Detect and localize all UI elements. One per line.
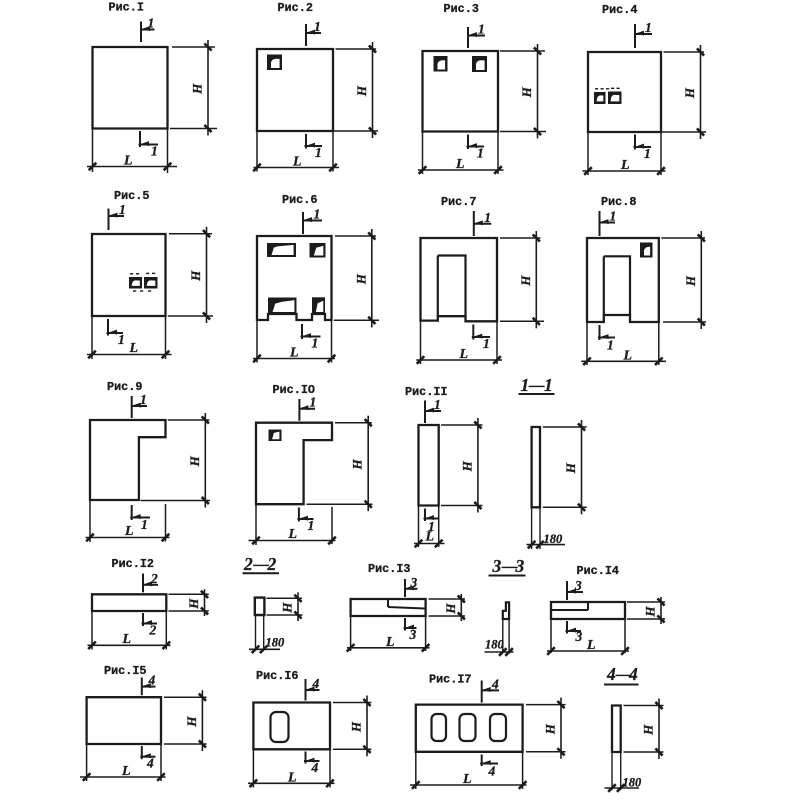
svg-text:H: H xyxy=(443,603,458,615)
svg-text:H: H xyxy=(353,273,368,285)
svg-text:1: 1 xyxy=(141,517,148,532)
svg-text:Рис.I7: Рис.I7 xyxy=(429,673,471,687)
svg-text:Рис.6: Рис.6 xyxy=(282,193,317,207)
svg-text:4: 4 xyxy=(146,756,154,771)
svg-text:H: H xyxy=(186,598,201,610)
svg-text:L: L xyxy=(462,772,472,787)
svg-text:L: L xyxy=(385,635,395,650)
svg-text:1: 1 xyxy=(315,145,322,160)
svg-text:L: L xyxy=(455,157,465,172)
svg-text:Рис.I4: Рис.I4 xyxy=(577,564,619,578)
svg-text:3: 3 xyxy=(515,556,525,576)
svg-text:1: 1 xyxy=(119,202,126,217)
svg-text:1: 1 xyxy=(645,20,652,35)
svg-text:3: 3 xyxy=(410,575,418,590)
svg-text:L: L xyxy=(459,347,469,362)
svg-text:L: L xyxy=(289,346,299,361)
svg-text:4: 4 xyxy=(488,764,496,779)
svg-text:4: 4 xyxy=(606,664,616,684)
svg-text:1: 1 xyxy=(314,207,321,222)
svg-text:Рис.II: Рис.II xyxy=(405,385,447,399)
svg-text:1: 1 xyxy=(484,210,491,225)
svg-text:2: 2 xyxy=(149,623,157,638)
svg-text:1: 1 xyxy=(477,146,484,161)
svg-text:H: H xyxy=(280,602,295,614)
svg-text:2: 2 xyxy=(243,554,253,574)
svg-text:L: L xyxy=(121,764,131,779)
svg-text:H: H xyxy=(682,87,697,99)
svg-text:Рис.I5: Рис.I5 xyxy=(104,664,146,678)
svg-text:L: L xyxy=(292,155,302,170)
svg-text:L: L xyxy=(620,158,630,173)
svg-text:L: L xyxy=(122,632,132,647)
svg-text:Рис.9: Рис.9 xyxy=(107,380,142,394)
svg-text:1: 1 xyxy=(483,336,490,351)
svg-text:H: H xyxy=(187,455,202,467)
svg-text:L: L xyxy=(123,154,133,169)
svg-text:1: 1 xyxy=(521,375,530,395)
svg-text:Рис.7: Рис.7 xyxy=(441,195,476,209)
svg-text:3: 3 xyxy=(492,556,502,576)
svg-text:180: 180 xyxy=(544,532,564,546)
svg-text:4: 4 xyxy=(148,673,156,688)
svg-text:1: 1 xyxy=(314,19,321,34)
svg-text:H: H xyxy=(543,723,558,735)
svg-text:4: 4 xyxy=(312,676,320,691)
svg-text:H: H xyxy=(683,275,698,287)
svg-text:H: H xyxy=(563,462,578,474)
svg-text:H: H xyxy=(354,85,369,97)
svg-text:3: 3 xyxy=(409,627,417,642)
svg-text:Рис.8: Рис.8 xyxy=(601,195,636,209)
svg-text:180: 180 xyxy=(623,776,643,790)
svg-text:L: L xyxy=(586,638,596,653)
svg-text:L: L xyxy=(287,771,297,786)
svg-text:3: 3 xyxy=(574,578,582,593)
svg-text:1: 1 xyxy=(140,392,147,407)
svg-text:1: 1 xyxy=(310,395,317,410)
svg-text:L: L xyxy=(425,530,435,545)
svg-text:4: 4 xyxy=(311,760,319,775)
svg-text:1: 1 xyxy=(478,22,485,37)
svg-text:1: 1 xyxy=(434,397,441,412)
svg-text:1: 1 xyxy=(118,332,125,347)
svg-text:1: 1 xyxy=(308,518,315,533)
svg-text:1: 1 xyxy=(312,336,319,351)
svg-text:Рис.4: Рис.4 xyxy=(602,3,637,17)
svg-text:1: 1 xyxy=(148,16,155,31)
svg-text:—: — xyxy=(528,377,545,394)
svg-text:H: H xyxy=(349,721,364,733)
svg-text:Рис.I: Рис.I xyxy=(109,1,144,15)
svg-text:L: L xyxy=(124,524,134,539)
svg-text:H: H xyxy=(350,459,365,471)
svg-text:1: 1 xyxy=(151,144,158,159)
svg-text:H: H xyxy=(643,606,658,618)
svg-text:Рис.I6: Рис.I6 xyxy=(256,669,298,683)
svg-text:1: 1 xyxy=(644,146,651,161)
svg-text:2: 2 xyxy=(150,571,158,586)
svg-text:1: 1 xyxy=(610,209,617,224)
svg-text:H: H xyxy=(188,270,203,282)
svg-text:Рис.I2: Рис.I2 xyxy=(112,557,154,571)
svg-text:180: 180 xyxy=(266,636,286,650)
svg-text:H: H xyxy=(184,716,199,728)
svg-text:L: L xyxy=(129,341,139,356)
svg-text:Рис.2: Рис.2 xyxy=(278,1,313,15)
svg-text:180: 180 xyxy=(485,638,505,652)
svg-text:2: 2 xyxy=(267,554,277,574)
svg-text:H: H xyxy=(641,724,656,736)
svg-text:1: 1 xyxy=(544,375,553,395)
svg-text:4: 4 xyxy=(491,676,499,691)
svg-text:L: L xyxy=(288,527,298,542)
svg-text:3: 3 xyxy=(575,629,583,644)
svg-text:Рис.I3: Рис.I3 xyxy=(368,562,410,576)
svg-text:H: H xyxy=(190,83,205,95)
svg-text:H: H xyxy=(518,275,533,287)
svg-text:1: 1 xyxy=(607,338,614,353)
svg-text:L: L xyxy=(623,349,633,364)
svg-text:Рис.5: Рис.5 xyxy=(114,189,149,203)
svg-text:H: H xyxy=(459,460,474,472)
svg-text:4: 4 xyxy=(628,664,638,684)
svg-text:H: H xyxy=(519,86,534,98)
svg-text:Рис.3: Рис.3 xyxy=(444,2,479,16)
